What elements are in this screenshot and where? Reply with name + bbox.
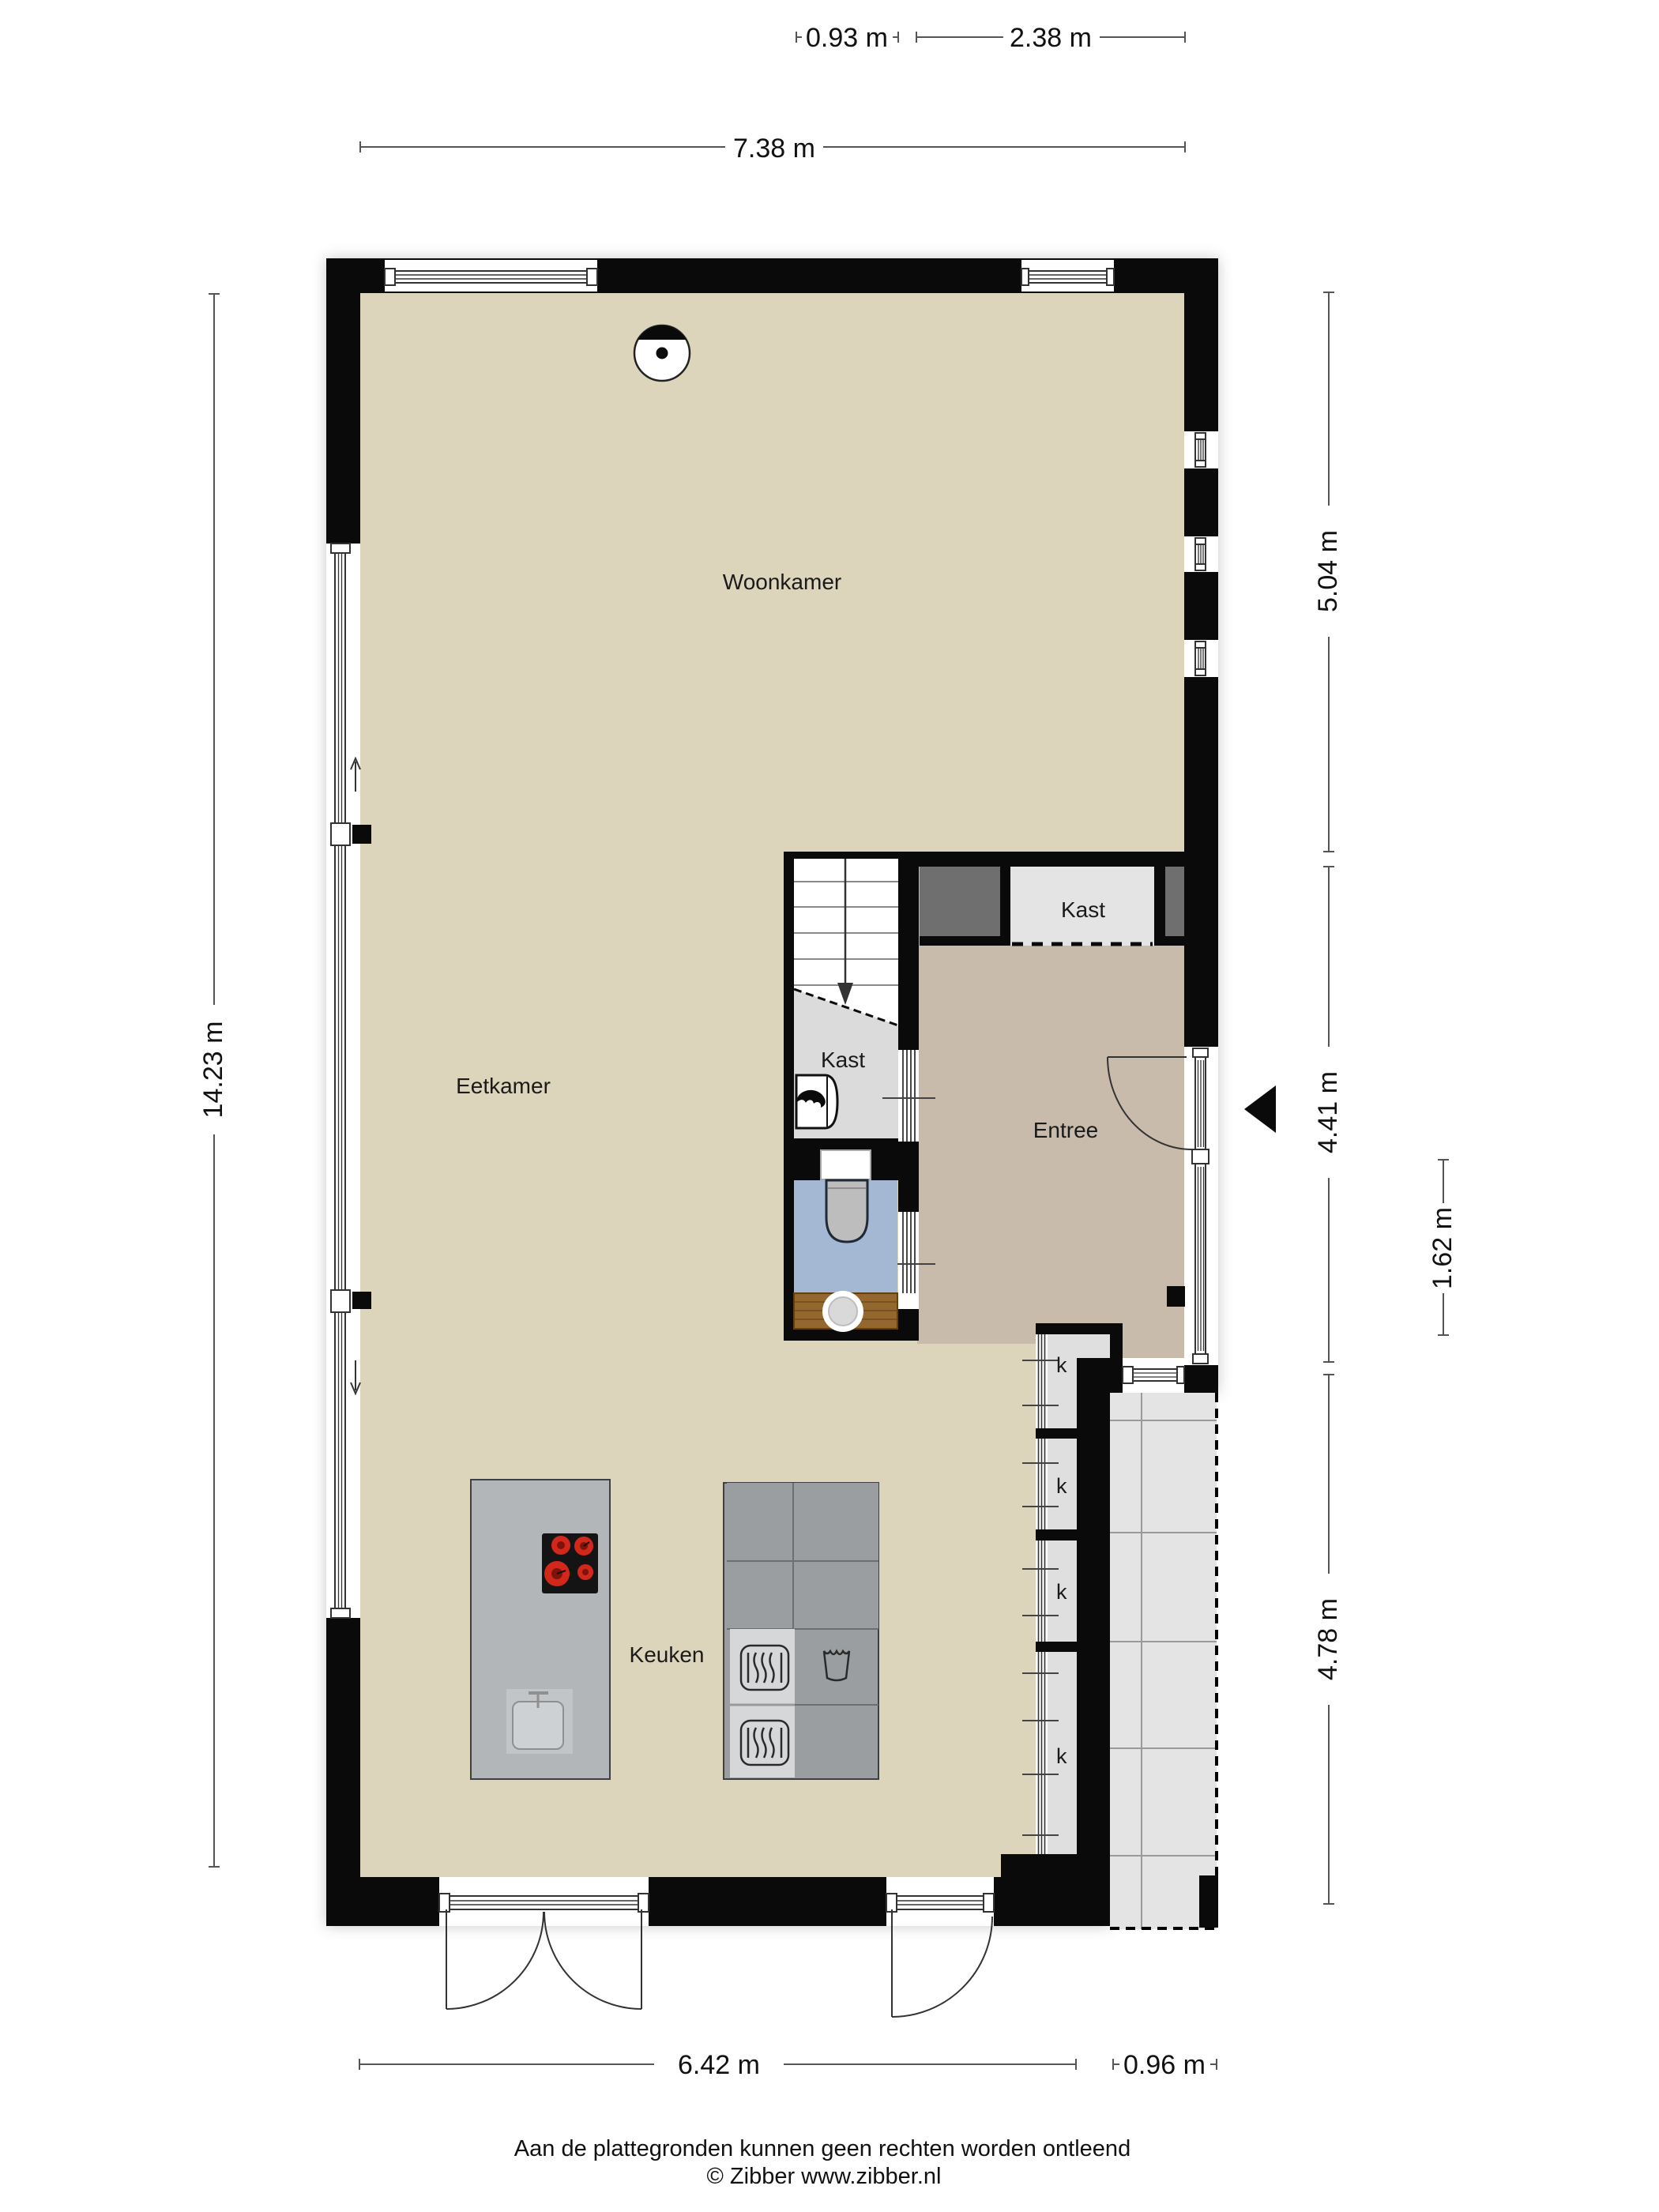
svg-text:© Zibber www.zibber.nl: © Zibber www.zibber.nl bbox=[707, 2164, 942, 2189]
svg-text:5.04 m: 5.04 m bbox=[1313, 530, 1343, 612]
svg-text:k: k bbox=[1056, 1353, 1067, 1377]
svg-text:4.78 m: 4.78 m bbox=[1313, 1598, 1343, 1680]
svg-text:6.42 m: 6.42 m bbox=[678, 2050, 760, 2080]
svg-text:Aan de plattegronden kunnen ge: Aan de plattegronden kunnen geen rechten… bbox=[514, 2136, 1130, 2161]
svg-text:0.93 m: 0.93 m bbox=[806, 23, 888, 53]
svg-text:Kast: Kast bbox=[821, 1048, 865, 1072]
svg-text:Kast: Kast bbox=[1061, 897, 1105, 922]
svg-text:Woonkamer: Woonkamer bbox=[723, 570, 841, 594]
svg-text:Entree: Entree bbox=[1033, 1118, 1099, 1142]
svg-text:4.41 m: 4.41 m bbox=[1313, 1071, 1343, 1153]
svg-text:k: k bbox=[1056, 1744, 1067, 1768]
svg-text:2.38 m: 2.38 m bbox=[1010, 23, 1092, 53]
svg-text:1.62 m: 1.62 m bbox=[1428, 1207, 1458, 1289]
svg-text:7.38 m: 7.38 m bbox=[733, 134, 815, 164]
svg-text:Keuken: Keuken bbox=[630, 1642, 705, 1667]
svg-text:14.23 m: 14.23 m bbox=[198, 1021, 228, 1119]
svg-text:k: k bbox=[1056, 1474, 1067, 1498]
svg-text:0.96 m: 0.96 m bbox=[1123, 2050, 1206, 2080]
svg-text:k: k bbox=[1056, 1580, 1067, 1604]
svg-text:Eetkamer: Eetkamer bbox=[456, 1074, 551, 1098]
